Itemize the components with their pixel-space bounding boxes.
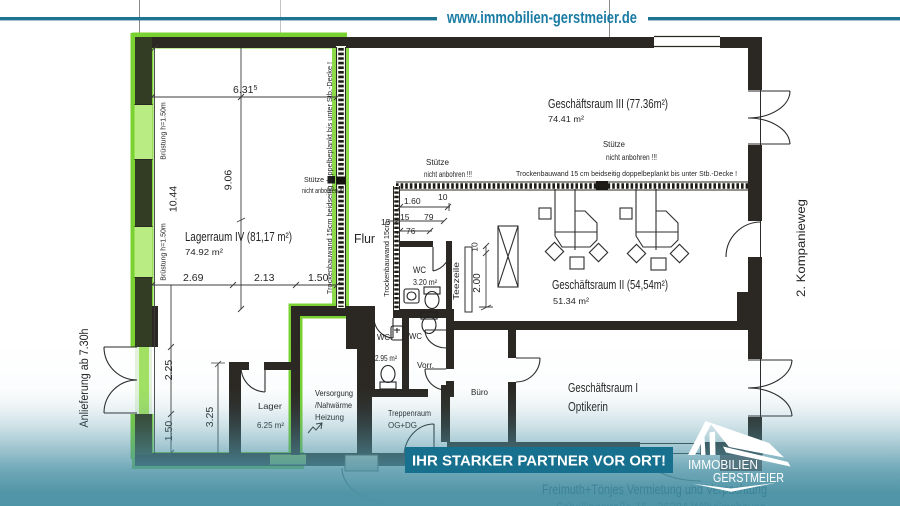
svg-text:2.00: 2.00 [472,273,483,293]
svg-text:Geschäftsraum III (77.36m²): Geschäftsraum III (77.36m²) [548,97,668,111]
svg-text:Lagerraum IV (81,17 m²): Lagerraum IV (81,17 m²) [185,230,292,244]
svg-text:10.44: 10.44 [167,186,179,212]
svg-text:Flur: Flur [354,232,375,246]
svg-text:IMMOBILIEN: IMMOBILIEN [688,458,758,472]
svg-text:10: 10 [469,242,479,252]
svg-text:Stütze: Stütze [603,140,626,149]
svg-text:2. Kompanieweg: 2. Kompanieweg [794,199,808,297]
svg-text:9.06: 9.06 [222,170,234,191]
svg-text:GERSTMEIER: GERSTMEIER [713,471,784,485]
svg-text:2.13: 2.13 [254,272,275,284]
svg-text:Schellingstraße 15 · 26384 Wil: Schellingstraße 15 · 26384 Wilhelmshaven [556,500,766,506]
svg-text:www.immobilien-gerstmeier.de: www.immobilien-gerstmeier.de [446,9,637,27]
svg-text:IHR STARKER PARTNER VOR ORT!: IHR STARKER PARTNER VOR ORT! [412,453,666,470]
svg-text:Trockenbauwand 15 cm beidseiti: Trockenbauwand 15 cm beidseitig doppelbe… [516,169,737,178]
svg-text:10: 10 [438,192,448,202]
svg-text:51.34 m²: 51.34 m² [553,296,589,306]
svg-text:2.69: 2.69 [183,272,204,284]
svg-text:Trockenbauwand 15cm: Trockenbauwand 15cm [382,221,391,297]
svg-text:74.41 m²: 74.41 m² [548,114,584,124]
svg-text:Stütze: Stütze [304,175,324,184]
svg-text:WC: WC [409,331,422,341]
svg-text:Geschäftsraum II (54,54m²): Geschäftsraum II (54,54m²) [552,278,668,292]
svg-text:nicht anbohren !!!: nicht anbohren !!! [302,186,344,195]
svg-text:15: 15 [400,212,410,222]
svg-text:nicht anbohren !!!: nicht anbohren !!! [424,170,472,179]
svg-text:3.20 m²: 3.20 m² [413,278,437,287]
svg-text:Teezeile: Teezeile [452,261,461,300]
svg-text:Stütze: Stütze [426,158,450,167]
svg-text:Trockenbauwand 15cm beidseitig: Trockenbauwand 15cm beidseitig doppelbep… [325,62,334,294]
svg-text:79: 79 [424,212,434,222]
svg-text:nicht anbohren !!!: nicht anbohren !!! [606,153,657,162]
svg-text:Brüstung h=1.50m: Brüstung h=1.50m [160,102,167,160]
svg-text:74.92 m²: 74.92 m² [185,247,223,257]
svg-text:1.60: 1.60 [404,196,421,206]
svg-text:Brüstung h=1.50m: Brüstung h=1.50m [160,223,167,281]
svg-text:76: 76 [406,226,416,236]
svg-text:WC: WC [413,265,426,275]
